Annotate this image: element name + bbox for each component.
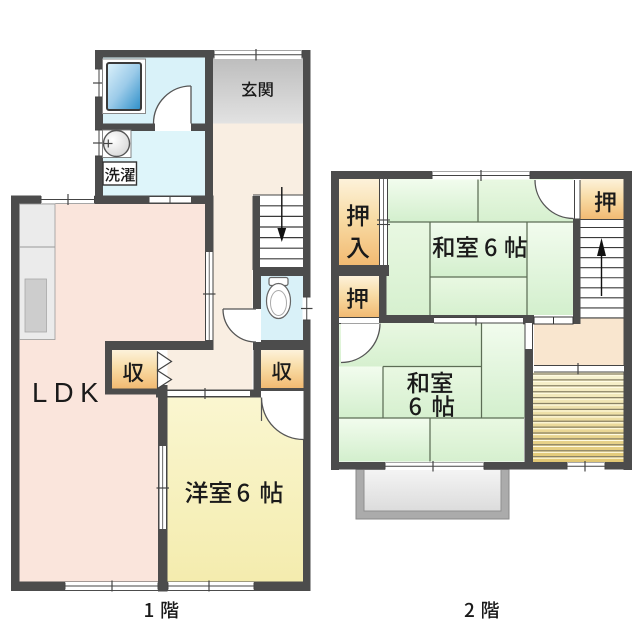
svg-text:LDK: LDK: [32, 377, 105, 408]
